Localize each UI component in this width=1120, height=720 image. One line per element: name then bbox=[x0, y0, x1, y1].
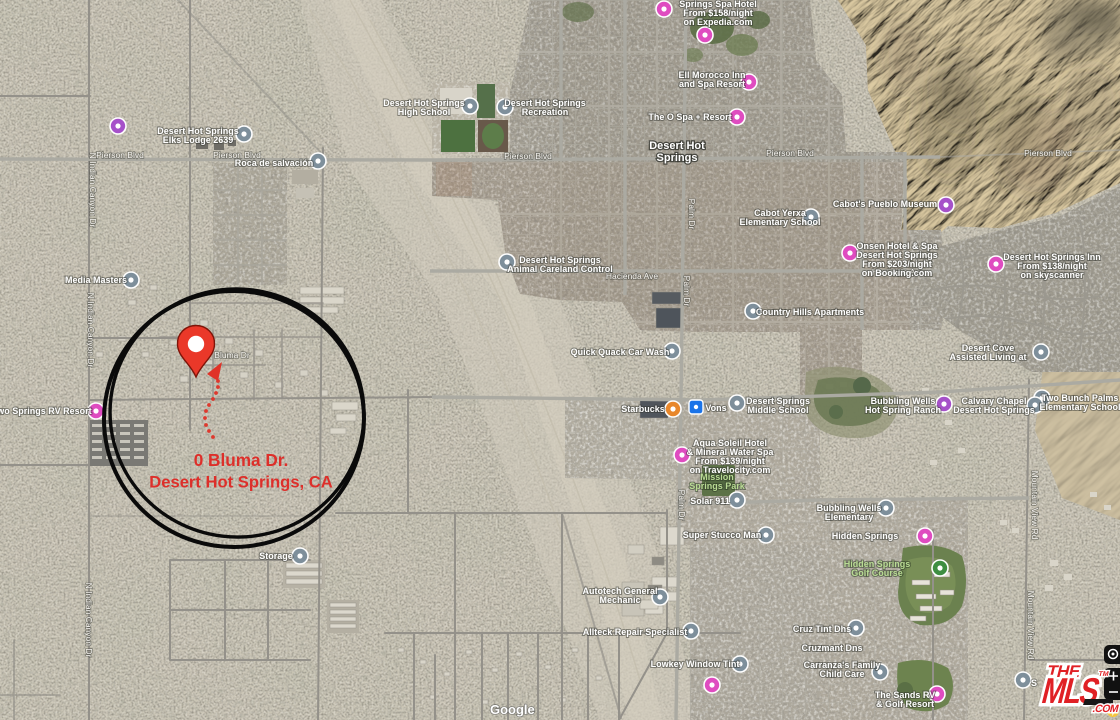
svg-text:Mountain View Rd: Mountain View Rd bbox=[1026, 591, 1036, 660]
svg-text:Animal Careland Control: Animal Careland Control bbox=[507, 264, 613, 274]
svg-text:TM: TM bbox=[1098, 670, 1110, 678]
svg-text:Allteck Repair Specialist: Allteck Repair Specialist bbox=[583, 627, 688, 637]
svg-text:on Booking.com: on Booking.com bbox=[862, 268, 933, 278]
svg-text:Elementary School: Elementary School bbox=[739, 217, 820, 227]
svg-text:S: S bbox=[1031, 678, 1037, 688]
svg-text:Roca de salvación: Roca de salvación bbox=[235, 158, 314, 168]
svg-text:0 Bluma Dr.: 0 Bluma Dr. bbox=[194, 450, 289, 470]
svg-text:Cabot's Pueblo Museum: Cabot's Pueblo Museum bbox=[833, 199, 937, 209]
svg-text:Pierson Blvd: Pierson Blvd bbox=[1024, 148, 1072, 158]
svg-text:Palm Dr: Palm Dr bbox=[687, 199, 697, 230]
svg-text:Solar 911: Solar 911 bbox=[690, 496, 730, 506]
svg-text:N Indian Canyon Dr: N Indian Canyon Dr bbox=[84, 583, 94, 658]
svg-text:Elementary School: Elementary School bbox=[1039, 402, 1120, 412]
svg-text:Pierson Blvd: Pierson Blvd bbox=[766, 148, 814, 158]
svg-text:& Golf Resort: & Golf Resort bbox=[876, 699, 934, 709]
svg-text:N Indian Canyon Dr: N Indian Canyon Dr bbox=[86, 293, 96, 368]
svg-text:on Expedia.com: on Expedia.com bbox=[683, 17, 752, 27]
svg-text:Recreation: Recreation bbox=[522, 107, 569, 117]
svg-text:Elks Lodge 2639: Elks Lodge 2639 bbox=[163, 135, 234, 145]
svg-text:High School: High School bbox=[398, 107, 451, 117]
svg-text:Desert Hot: Desert Hot bbox=[649, 140, 705, 152]
svg-text:Springs: Springs bbox=[657, 152, 698, 164]
svg-text:Hacienda Ave: Hacienda Ave bbox=[606, 271, 659, 281]
svg-text:Elementary: Elementary bbox=[825, 512, 874, 522]
svg-text:Hidden Springs: Hidden Springs bbox=[832, 531, 899, 541]
svg-text:Child Care: Child Care bbox=[819, 669, 864, 679]
svg-text:Cruzmant Dns: Cruzmant Dns bbox=[801, 643, 862, 653]
svg-text:Pierson Blvd: Pierson Blvd bbox=[504, 151, 552, 161]
svg-text:Super Stucco Man: Super Stucco Man bbox=[683, 530, 762, 540]
svg-text:and Spa Resort: and Spa Resort bbox=[679, 79, 745, 89]
svg-text:Mechanic: Mechanic bbox=[599, 595, 640, 605]
svg-text:Media Masters: Media Masters bbox=[65, 275, 127, 285]
svg-text:The O Spa + Resort: The O Spa + Resort bbox=[648, 112, 731, 122]
svg-text:Assisted Living at: Assisted Living at bbox=[949, 352, 1026, 362]
svg-text:Vons: Vons bbox=[705, 403, 726, 413]
svg-text:N Indian Canyon Dr: N Indian Canyon Dr bbox=[88, 153, 98, 228]
svg-text:Cruz Tint Dhs: Cruz Tint Dhs bbox=[793, 624, 851, 634]
svg-text:Mountain View Rd: Mountain View Rd bbox=[1030, 471, 1040, 540]
svg-text:Starbucks: Starbucks bbox=[621, 404, 665, 414]
svg-text:Desert Hot Springs, CA: Desert Hot Springs, CA bbox=[149, 473, 332, 492]
svg-text:Google: Google bbox=[490, 702, 535, 717]
svg-text:Palm Dr: Palm Dr bbox=[677, 490, 687, 521]
svg-text:Pierson Blvd: Pierson Blvd bbox=[96, 150, 144, 160]
svg-text:Palm Dr: Palm Dr bbox=[682, 276, 692, 307]
svg-text:Desert Hot Springs: Desert Hot Springs bbox=[953, 405, 1035, 415]
svg-text:Country Hills Apartments: Country Hills Apartments bbox=[756, 307, 864, 317]
svg-text:Two Springs RV Resort: Two Springs RV Resort bbox=[0, 406, 92, 416]
svg-text:Golf Course: Golf Course bbox=[851, 568, 903, 578]
svg-text:.COM: .COM bbox=[1091, 703, 1120, 715]
svg-text:Middle School: Middle School bbox=[747, 405, 808, 415]
svg-text:Springs Park: Springs Park bbox=[689, 481, 746, 491]
svg-text:Hot Spring Ranch: Hot Spring Ranch bbox=[865, 405, 941, 415]
svg-text:on skyscanner: on skyscanner bbox=[1020, 270, 1084, 280]
svg-text:Storage: Storage bbox=[259, 551, 293, 561]
svg-text:Quick Quack Car Wash: Quick Quack Car Wash bbox=[571, 347, 670, 357]
svg-text:Bluma Dr: Bluma Dr bbox=[214, 350, 250, 360]
svg-text:Lowkey Window Tint: Lowkey Window Tint bbox=[651, 659, 740, 669]
